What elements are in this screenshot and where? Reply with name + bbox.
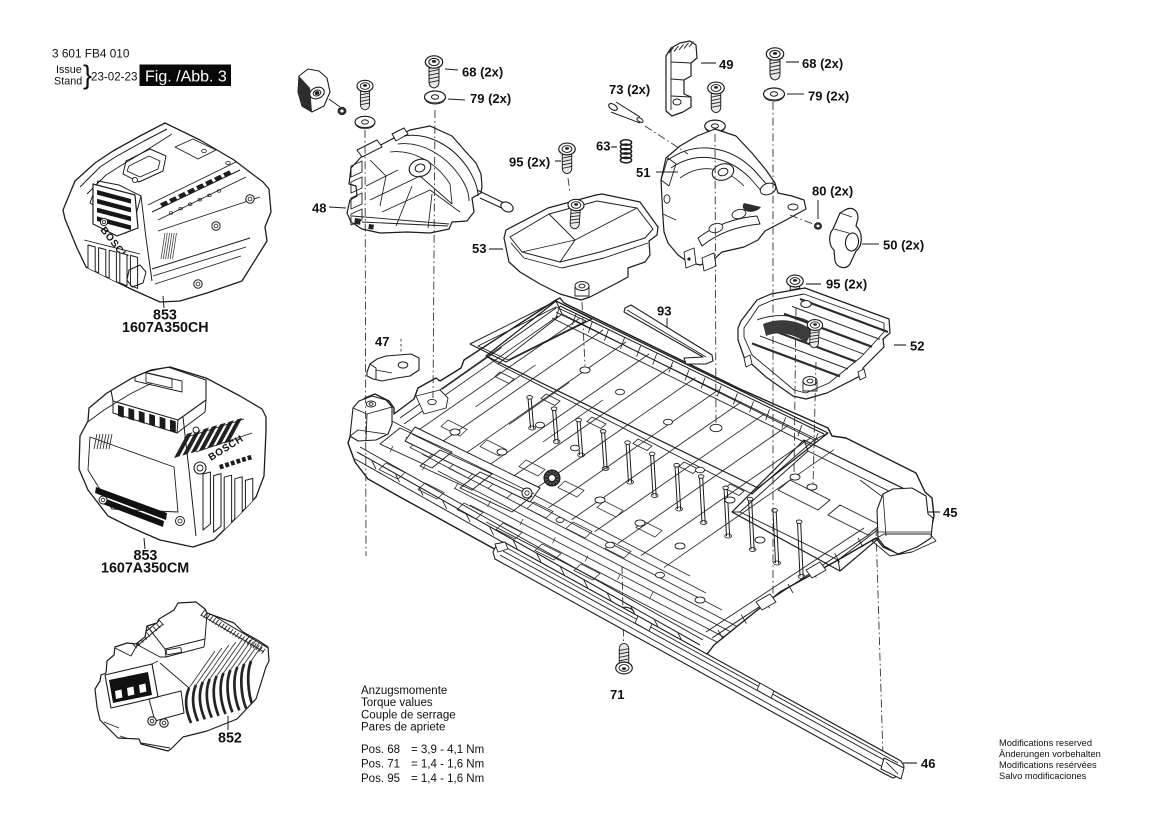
svg-text:= 1,4 - 1,6 Nm: = 1,4 - 1,6 Nm [411, 773, 484, 785]
svg-text:95 (2x): 95 (2x) [826, 277, 867, 292]
svg-text:Modifications resérvées: Modifications resérvées [999, 760, 1097, 770]
svg-text:71: 71 [610, 687, 624, 702]
svg-text:Fig. /Abb. 3: Fig. /Abb. 3 [145, 69, 227, 86]
svg-text:50 (2x): 50 (2x) [883, 238, 924, 253]
svg-text:79 (2x): 79 (2x) [808, 89, 849, 104]
svg-text:Modifications reserved: Modifications reserved [999, 738, 1092, 748]
svg-text:Pares de apriete: Pares de apriete [361, 722, 445, 734]
svg-text:23-02-23: 23-02-23 [91, 71, 137, 84]
svg-text:46: 46 [921, 756, 935, 771]
svg-text:45: 45 [943, 505, 957, 520]
svg-text:3 601 FB4 010: 3 601 FB4 010 [52, 47, 130, 61]
svg-text:93: 93 [657, 304, 671, 319]
svg-text:Pos. 68: Pos. 68 [361, 744, 400, 756]
svg-text:68 (2x): 68 (2x) [462, 65, 503, 80]
svg-text:Issue: Issue [56, 64, 82, 76]
svg-text:= 1,4 - 1,6 Nm: = 1,4 - 1,6 Nm [411, 759, 484, 771]
svg-text:Stand: Stand [54, 76, 82, 88]
svg-text:852: 852 [218, 731, 242, 747]
svg-text:Änderungen vorbehalten: Änderungen vorbehalten [999, 749, 1101, 759]
svg-text:49: 49 [719, 57, 733, 72]
svg-text:47: 47 [375, 334, 389, 349]
svg-text:Anzugsmomente: Anzugsmomente [361, 685, 447, 697]
svg-text:73 (2x): 73 (2x) [609, 82, 650, 97]
svg-text:Salvo modificaciones: Salvo modificaciones [999, 771, 1087, 781]
svg-text:68 (2x): 68 (2x) [802, 56, 843, 71]
svg-text:63: 63 [596, 139, 610, 154]
svg-text:52: 52 [910, 339, 924, 354]
svg-text:80 (2x): 80 (2x) [812, 184, 853, 199]
svg-text:79 (2x): 79 (2x) [470, 91, 511, 106]
svg-text:1607A350CH: 1607A350CH [122, 320, 209, 336]
svg-text:Couple de serrage: Couple de serrage [361, 709, 456, 721]
svg-text:53: 53 [472, 241, 486, 256]
svg-text:= 3,9 - 4,1 Nm: = 3,9 - 4,1 Nm [411, 744, 484, 756]
svg-text:48: 48 [312, 201, 326, 216]
svg-text:95 (2x): 95 (2x) [509, 155, 550, 170]
svg-text:1607A350CM: 1607A350CM [101, 560, 189, 576]
svg-text:51: 51 [636, 165, 650, 180]
svg-text:Pos. 71: Pos. 71 [361, 759, 400, 771]
svg-text:Torque values: Torque values [361, 697, 433, 709]
svg-text:Pos. 95: Pos. 95 [361, 773, 400, 785]
